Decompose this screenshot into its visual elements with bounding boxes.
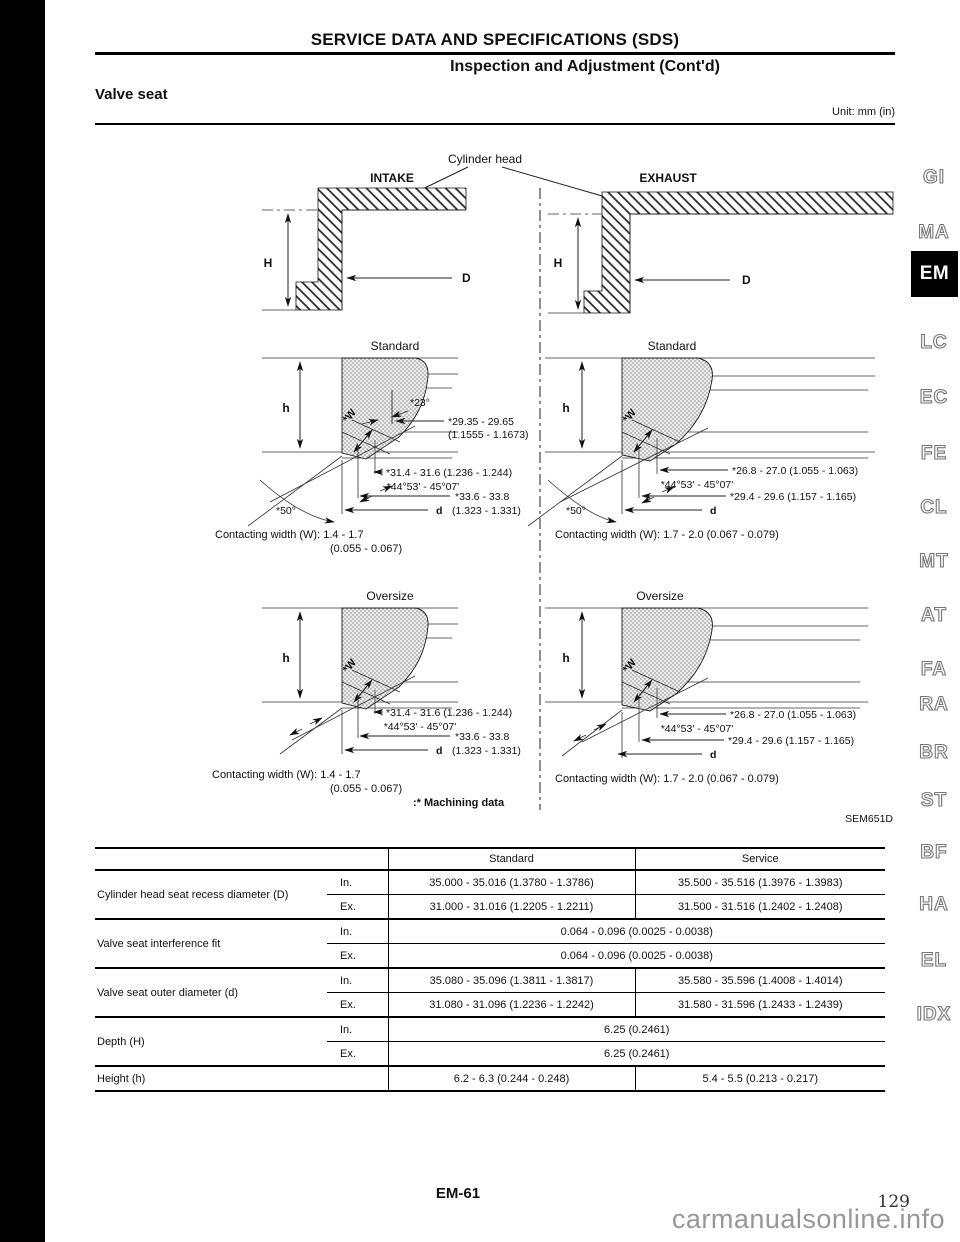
value-cell: 35.000 - 35.016 (1.3780 - 1.3786): [388, 870, 635, 895]
table-row: Cylinder head seat recess diameter (D) I…: [95, 870, 885, 895]
row-label: Height (h): [95, 1066, 388, 1091]
ex-label: Ex.: [327, 944, 388, 969]
value-cell: 35.080 - 35.096 (1.3811 - 1.3817): [388, 968, 635, 993]
h-label: h: [562, 651, 569, 665]
unit-note: Unit: mm (in): [695, 106, 895, 118]
seat-angle: *44°53' - 45°07': [387, 481, 460, 493]
intake-H-label: H: [264, 256, 273, 270]
manual-page: SERVICE DATA AND SPECIFICATIONS (SDS) In…: [0, 0, 960, 1242]
ex-label: Ex.: [327, 993, 388, 1018]
diagram-title: Oversize: [366, 589, 414, 603]
diagram-title: Standard: [648, 339, 697, 353]
valve-seat-spec-table: Standard Service Cylinder head seat rece…: [95, 847, 885, 1092]
tab-el: EL: [908, 950, 960, 972]
valve-seat-diagram: Cylinder head INTAKE EXHAUST H D H D: [0, 130, 960, 842]
tab-ra: RA: [908, 694, 960, 716]
value-cell: 31.500 - 31.516 (1.2402 - 1.2408): [635, 895, 885, 920]
table-header-row: Standard Service: [95, 848, 885, 870]
tab-fe: FE: [908, 443, 960, 465]
outer-diameter: *33.6 - 33.8: [455, 491, 509, 503]
page-title: SERVICE DATA AND SPECIFICATIONS (SDS): [95, 30, 895, 50]
seat-cross-section: [342, 608, 428, 709]
cylinder-head-sections: Cylinder head INTAKE EXHAUST H D H D: [262, 152, 893, 313]
seat-diameter: *31.4 - 31.6 (1.236 - 1.244): [386, 707, 512, 719]
tab-st: ST: [908, 790, 960, 812]
contacting-width: Contacting width (W): 1.4 - 1.7: [215, 529, 364, 541]
seat-angle: *44°53' - 45°07': [384, 721, 457, 733]
cylinder-head-label: Cylinder head: [448, 152, 522, 166]
contacting-width: Contacting width (W): 1.7 - 2.0 (0.067 -…: [555, 529, 779, 541]
value-cell: 35.500 - 35.516 (1.3976 - 1.3983): [635, 870, 885, 895]
exhaust-standard-seat: Standard h *W *26.8 - 27.0 (1.055 - 1.06…: [528, 339, 875, 541]
outer-diameter: *33.6 - 33.8: [455, 731, 509, 743]
exhaust-H-label: H: [554, 256, 563, 270]
contacting-width-in: (0.055 - 0.067): [330, 783, 402, 795]
seat-diameter: *31.4 - 31.6 (1.236 - 1.244): [386, 467, 512, 479]
value-cell: 35.580 - 35.596 (1.4008 - 1.4014): [635, 968, 885, 993]
table-row: Height (h) 6.2 - 6.3 (0.244 - 0.248) 5.4…: [95, 1066, 885, 1091]
seat-angle: *44°53' - 45°07': [661, 479, 734, 491]
header-service: Service: [635, 848, 885, 870]
in-label: In.: [327, 968, 388, 993]
outer-diameter-in: (1.323 - 1.331): [452, 745, 521, 757]
row-label: Valve seat outer diameter (d): [95, 968, 327, 1017]
machining-note: :* Machining data: [413, 797, 505, 809]
title-rule: [95, 52, 895, 55]
chamfer-angle: *23°: [410, 397, 430, 409]
exhaust-D-label: D: [742, 273, 751, 287]
intake-D-label: D: [462, 271, 471, 285]
bottom-angle: *50°: [276, 505, 296, 517]
intake-oversize-seat: Oversize h *W *31.4 - 31.6 (1.236 - 1.24…: [212, 589, 521, 809]
seat-diameter: *26.8 - 27.0 (1.055 - 1.063): [730, 709, 856, 721]
h-label: h: [282, 651, 289, 665]
header-empty-cell: [95, 848, 388, 870]
value-cell: 6.2 - 6.3 (0.244 - 0.248): [388, 1066, 635, 1091]
row-label: Valve seat interference fit: [95, 919, 327, 968]
intake-label: INTAKE: [370, 171, 414, 185]
h-label: h: [562, 401, 569, 415]
outer-diameter-in: (1.323 - 1.331): [452, 505, 521, 517]
tab-cl: CL: [908, 497, 960, 519]
value-cell: 31.080 - 31.096 (1.2236 - 1.2242): [388, 993, 635, 1018]
page-subtitle: Inspection and Adjustment (Cont'd): [275, 58, 895, 76]
diagram-title: Oversize: [636, 589, 684, 603]
table-row: Valve seat interference fit In. 0.064 - …: [95, 919, 885, 944]
tab-em-active: EM: [911, 251, 958, 297]
seat-diameter: *26.8 - 27.0 (1.055 - 1.063): [732, 465, 858, 477]
tab-fa: FA: [908, 659, 960, 681]
seat-angle: *44°53' - 45°07': [661, 723, 734, 735]
value-cell: 5.4 - 5.5 (0.213 - 0.217): [635, 1066, 885, 1091]
intake-standard-seat: Standard h *W *23° *29.35 - 29.65 (1.155…: [215, 339, 529, 555]
top-diameter: *29.35 - 29.65: [448, 416, 514, 428]
d-label: d: [436, 505, 442, 517]
exhaust-label: EXHAUST: [639, 171, 697, 185]
tab-mt: MT: [908, 551, 960, 573]
value-cell: 0.064 - 0.096 (0.0025 - 0.0038): [388, 919, 885, 944]
contacting-width-in: (0.055 - 0.067): [330, 543, 402, 555]
outer-diameter: *29.4 - 29.6 (1.157 - 1.165): [730, 491, 856, 503]
outer-diameter: *29.4 - 29.6 (1.157 - 1.165): [728, 735, 854, 747]
tab-bf: BF: [908, 842, 960, 864]
ex-label: Ex.: [327, 895, 388, 920]
contacting-width: Contacting width (W): 1.4 - 1.7: [212, 769, 361, 781]
value-cell: 31.000 - 31.016 (1.2205 - 1.2211): [388, 895, 635, 920]
value-cell: 0.064 - 0.096 (0.0025 - 0.0038): [388, 944, 885, 969]
table-row: Valve seat outer diameter (d) In. 35.080…: [95, 968, 885, 993]
contacting-width: Contacting width (W): 1.7 - 2.0 (0.067 -…: [555, 773, 779, 785]
in-label: In.: [327, 919, 388, 944]
bottom-angle: *50°: [566, 505, 586, 517]
d-label: d: [710, 505, 716, 517]
section-rule: [95, 123, 895, 125]
seat-cross-section: [622, 608, 712, 711]
tab-ha: HA: [908, 894, 960, 916]
diagram-title: Standard: [371, 339, 420, 353]
tab-idx: IDX: [908, 1004, 960, 1026]
d-label: d: [436, 745, 442, 757]
table-row: Depth (H) In. 6.25 (0.2461): [95, 1017, 885, 1042]
section-title: Valve seat: [95, 86, 168, 103]
header-standard: Standard: [388, 848, 635, 870]
seat-cross-section: [622, 358, 712, 461]
exhaust-oversize-seat: Oversize h *W *26.8 - 27.0 (1.055 - 1.06…: [545, 589, 868, 785]
value-cell: 6.25 (0.2461): [388, 1042, 885, 1067]
tab-ma: MA: [908, 222, 960, 244]
footer-page-code: EM-61: [95, 1185, 821, 1202]
h-label: h: [282, 401, 289, 415]
tab-br: BR: [908, 742, 960, 764]
ex-label: Ex.: [327, 1042, 388, 1067]
in-label: In.: [327, 1017, 388, 1042]
intake-section-hatch: [296, 188, 466, 310]
watermark: carmanualsonline.info: [400, 1204, 945, 1235]
tab-gi: GI: [908, 167, 960, 189]
in-label: In.: [327, 870, 388, 895]
tab-em-label: EM: [911, 251, 958, 297]
tab-at: AT: [908, 605, 960, 627]
tab-ec: EC: [908, 387, 960, 409]
top-diameter-in: (1.1555 - 1.1673): [448, 429, 529, 441]
row-label: Cylinder head seat recess diameter (D): [95, 870, 327, 919]
d-label: d: [710, 749, 716, 761]
row-label: Depth (H): [95, 1017, 327, 1066]
tab-lc: LC: [908, 332, 960, 354]
figure-code: SEM651D: [845, 813, 893, 825]
value-cell: 6.25 (0.2461): [388, 1017, 885, 1042]
value-cell: 31.580 - 31.596 (1.2433 - 1.2439): [635, 993, 885, 1018]
